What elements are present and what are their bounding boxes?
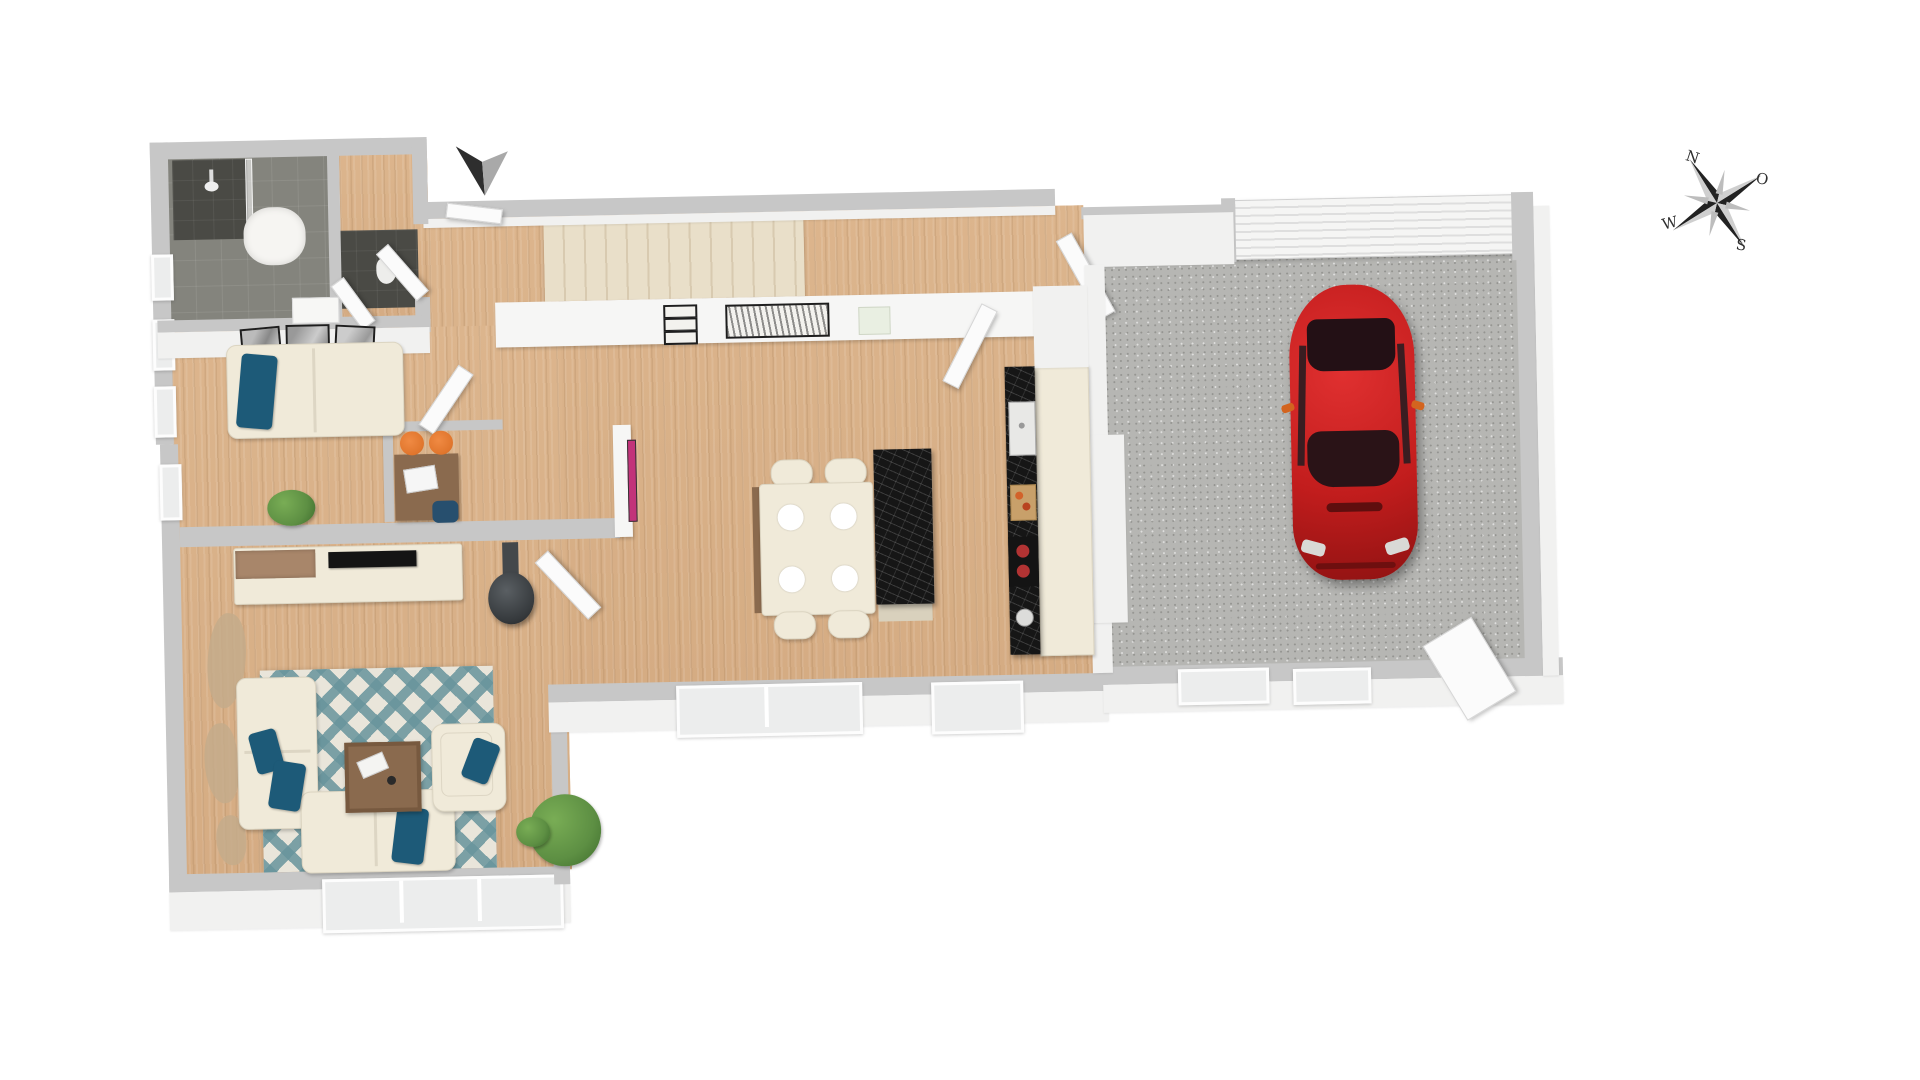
garage-door-post-right <box>1511 192 1534 260</box>
car-rear-window <box>1307 318 1396 372</box>
desk-chair-navy <box>432 500 458 523</box>
bathroom-vanity <box>292 297 340 324</box>
entrance-arrow-icon <box>454 143 511 200</box>
wall-tv-screen <box>627 440 638 522</box>
car-headlight-left <box>1300 539 1327 558</box>
west-window-1 <box>151 254 174 300</box>
kitchen-window-2 <box>931 681 1024 735</box>
west-window-4 <box>159 464 182 520</box>
wall-kitchen-garage-divider-thick <box>1088 434 1128 623</box>
garage-window-1 <box>1178 667 1270 705</box>
floor-plan <box>141 105 1578 965</box>
dining-chair-3 <box>774 611 817 640</box>
dining-table <box>759 482 876 616</box>
kitchen-window-1 <box>676 682 863 738</box>
cutting-board <box>1010 484 1037 521</box>
car-side-window-left <box>1298 346 1307 466</box>
cooktop <box>1008 536 1039 587</box>
west-window-3 <box>154 386 177 437</box>
kitchen-island <box>873 448 934 604</box>
car-headlight-right <box>1384 536 1411 556</box>
garage-window-2 <box>1293 667 1372 705</box>
sofa-throw-bottom <box>391 806 429 865</box>
tv <box>328 550 416 568</box>
kitchen-sink <box>1008 401 1036 456</box>
kitchen-tall-unit <box>1033 285 1089 368</box>
shower-head-icon <box>200 169 222 191</box>
lowboard-wood-box <box>235 549 316 579</box>
coffee-table <box>344 741 421 813</box>
stair-art-small-stack-3 <box>664 330 698 345</box>
plate <box>830 503 857 530</box>
dining-chair-4 <box>828 610 871 639</box>
plate <box>779 566 806 593</box>
kitchen-cabinets <box>1035 365 1095 656</box>
shower-tray <box>243 207 306 266</box>
plate <box>832 565 859 592</box>
wall-west-wing-east <box>412 139 429 224</box>
compass-rose: N O W S <box>1640 118 1830 288</box>
car-windshield <box>1307 430 1400 488</box>
laptop <box>403 465 438 494</box>
compass-star-icon <box>1641 127 1793 279</box>
stair-art-green <box>858 306 891 335</box>
living-window <box>322 874 564 933</box>
car-hood-vent <box>1326 502 1382 512</box>
stair-art-large <box>725 303 830 339</box>
red-car <box>1288 283 1419 581</box>
guest-sofa-throw <box>236 353 278 430</box>
staircase <box>543 218 805 301</box>
wall-garage-north-left-face <box>1083 212 1234 267</box>
garage-door <box>1233 194 1518 260</box>
car-front-splitter <box>1316 562 1396 570</box>
compass-label-south: S <box>1735 235 1748 254</box>
wall-desk-nook-left <box>383 422 395 522</box>
plate <box>777 504 804 531</box>
